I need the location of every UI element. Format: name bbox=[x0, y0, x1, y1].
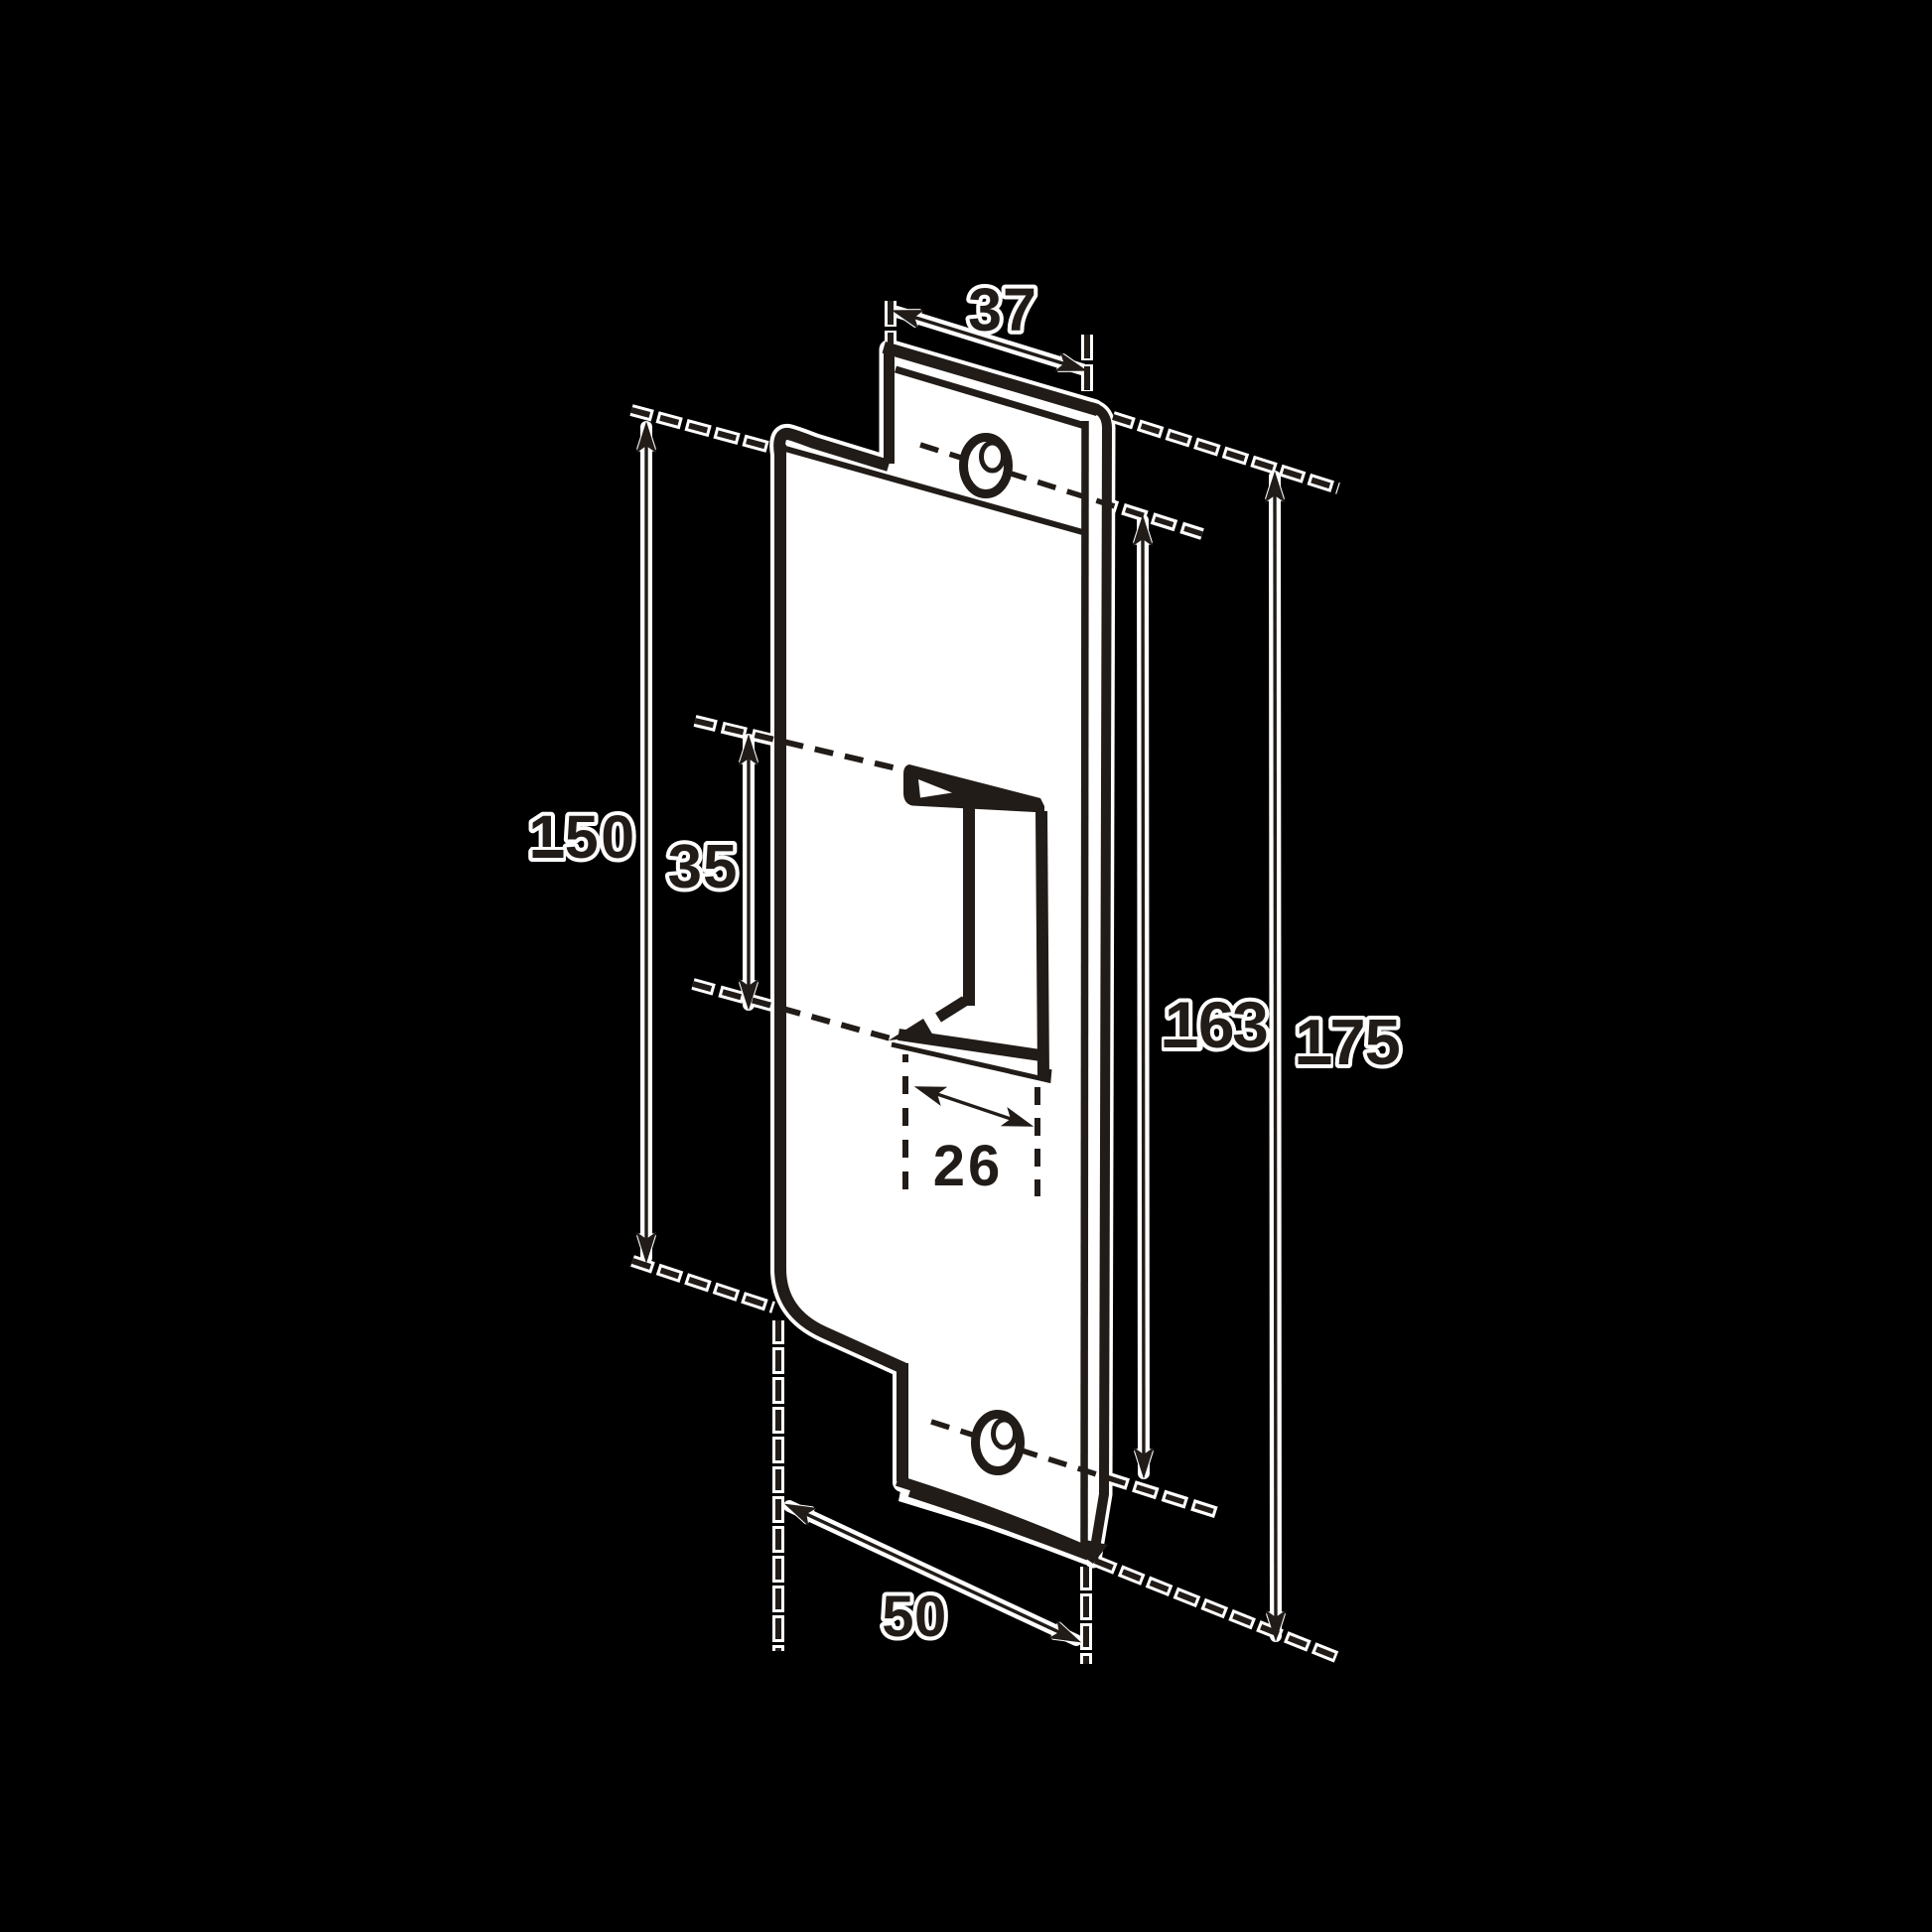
svg-text:26: 26 bbox=[933, 1134, 1004, 1198]
svg-text:35: 35 bbox=[668, 833, 739, 901]
svg-text:37: 37 bbox=[968, 276, 1037, 344]
svg-text:50: 50 bbox=[882, 1585, 947, 1649]
